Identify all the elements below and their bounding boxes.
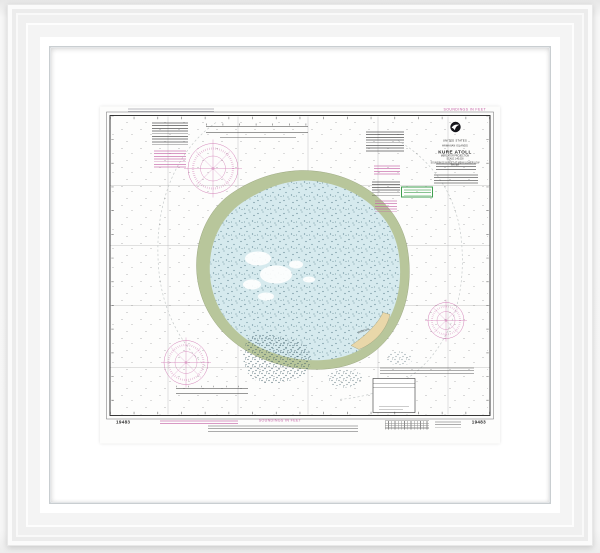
title-region: HAWAIIAN ISLANDS [428, 144, 482, 147]
chart-paper: GREEN IS [100, 107, 500, 444]
title-scale: SCALE 1:40,000 [428, 159, 482, 161]
note-block-left-magenta [154, 151, 186, 169]
soundings-note-bottom: SOUNDINGS IN FEET [240, 419, 320, 423]
chart-number-right: 19483 [456, 420, 486, 425]
title-projection: MERCATOR PROJECTION [428, 156, 482, 158]
note-block-top-left [128, 109, 214, 113]
note-block-right-magenta-1 [374, 166, 400, 175]
note-block-right-1 [366, 132, 404, 152]
bottom-notes-paragraph [208, 426, 358, 433]
picture-frame: GREEN IS [7, 4, 593, 546]
note-box-green [401, 187, 433, 198]
note-block-right-magenta-2 [375, 201, 397, 213]
inset-header-notes [380, 368, 474, 376]
chart-title: KURE ATOLL [428, 150, 482, 155]
note-block-right-2 [372, 182, 400, 196]
bottom-conversion-table [385, 421, 429, 430]
inset-box [373, 379, 415, 413]
title-block: UNITED STATES HAWAIIAN ISLANDS KURE ATOL… [428, 120, 482, 167]
note-block-left-black [152, 123, 188, 145]
title-agency: UNITED STATES [428, 140, 482, 143]
noaa-logo-icon [450, 120, 461, 138]
mat-board: GREEN IS [51, 48, 549, 502]
title-notes-1 [436, 164, 476, 172]
coral-cluster-s [327, 370, 363, 388]
coral-cluster-se [387, 352, 413, 366]
soundings-note-top: SOUNDINGS IN FEET [400, 108, 486, 112]
title-notes-2 [434, 175, 478, 184]
chart-number-left: 19483 [116, 420, 130, 425]
framed-chart-photo: GREEN IS [0, 0, 600, 553]
note-box-green-text [404, 189, 431, 195]
